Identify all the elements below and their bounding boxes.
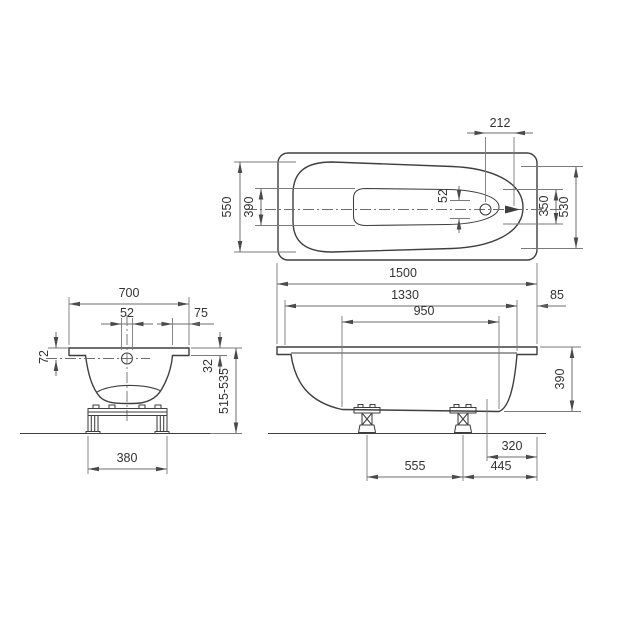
front-view: 700 52 75 72 32 515-535 380: [20, 286, 242, 474]
dim-depth-label: 390: [553, 369, 567, 390]
tub-outer-rim-plan: [278, 153, 537, 260]
overflow-arrow-icon: [505, 206, 520, 214]
front-rim-lip-right: [173, 348, 190, 356]
tub-floor-arc-front: [97, 385, 160, 392]
dim-drain-hole-plan-label: 52: [436, 189, 450, 203]
dim-drain-offset-label: 212: [490, 116, 511, 130]
dim-drain-hole-front-label: 52: [120, 306, 134, 320]
dim-floor-width-head-label: 350: [537, 196, 551, 217]
dim-overall-length-label: 1500: [389, 266, 417, 280]
dim-rim-lip-label: 75: [194, 306, 208, 320]
dim-floor-width-foot-label: 390: [242, 197, 256, 218]
technical-drawing-page: 212 550 390 52 350 530: [0, 0, 629, 629]
dim-overall-width-label: 700: [119, 286, 140, 300]
dim-inner-width-head-label: 530: [557, 197, 571, 218]
dim-feet-spacing-label: 555: [405, 459, 426, 473]
dim-install-height-label: 515-535: [217, 368, 231, 414]
dim-inner-length-label: 1330: [391, 288, 419, 302]
tub-profile-front: [86, 356, 173, 404]
support-foot-side-right: [450, 405, 476, 433]
tub-inner-outline-plan: [293, 162, 523, 252]
dim-drain-to-end-label: 320: [502, 439, 523, 453]
tub-floor-outline-plan: [354, 189, 500, 226]
side-view: 1500 1330 85 950 390 320 555 445: [268, 263, 581, 481]
front-rim-lip-left: [69, 348, 86, 356]
support-frame-front: [86, 405, 169, 434]
dim-support-width-label: 380: [117, 451, 138, 465]
dim-floor-length-label: 950: [414, 304, 435, 318]
dim-inner-width-foot-label: 550: [220, 197, 234, 218]
side-rim-lip-right: [517, 347, 537, 355]
top-view: 212 550 390 52 350 530: [220, 116, 583, 260]
dim-rim-height-label: 32: [201, 359, 215, 373]
dim-rim-overhang-label: 85: [550, 288, 564, 302]
support-foot-side-left: [354, 405, 380, 433]
side-rim-lip-left: [277, 347, 291, 355]
tub-profile-side: [291, 355, 517, 412]
bathtub-dimension-drawing: 212 550 390 52 350 530: [0, 0, 629, 629]
dim-drain-depth-label: 72: [37, 350, 51, 364]
dim-foot-to-end-label: 445: [491, 459, 512, 473]
